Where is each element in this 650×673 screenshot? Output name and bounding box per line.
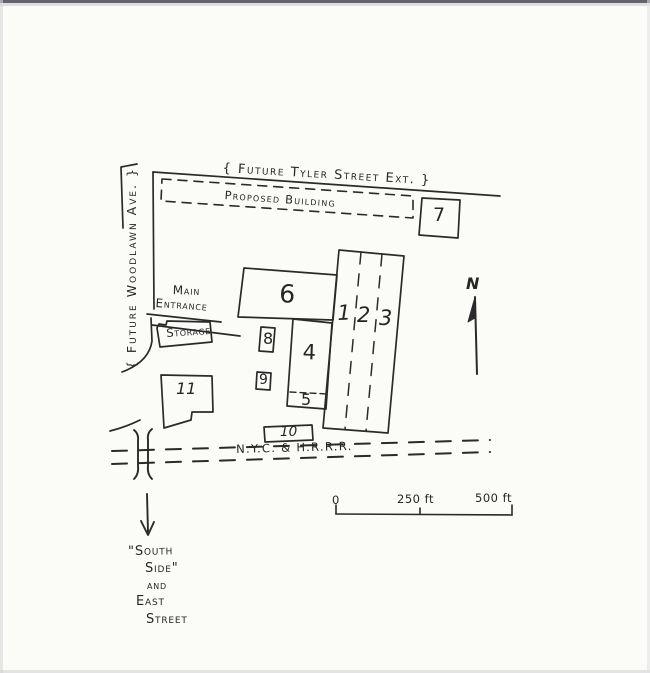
- south-label-line5: Street: [146, 613, 188, 626]
- factory-bay-divider-2: [366, 254, 382, 431]
- site-plan-page: { Future Tyler Street Ext. } { Future Wo…: [0, 0, 650, 673]
- building-11-number: 11: [176, 381, 196, 397]
- scan-edge-top-shadow: [0, 3, 650, 6]
- factory-bay-divider-1: [345, 252, 361, 429]
- building-7-number: 7: [433, 206, 445, 225]
- building-1-number: 1: [337, 303, 351, 324]
- crossing-mark-right: [148, 429, 152, 479]
- scale-bar-line: [336, 514, 512, 515]
- north-arrow-head: [468, 297, 475, 322]
- building-10-number: 10: [280, 426, 297, 440]
- building-6-number: 6: [279, 281, 296, 307]
- site-plan-drawing: [0, 0, 650, 673]
- scale-label-end: 500 ft: [475, 493, 512, 505]
- south-label-line4: East: [136, 595, 165, 608]
- building-2-number: 2: [357, 305, 370, 326]
- main-entrance-label-line2: Entrance: [155, 297, 208, 313]
- south-label-line1: "South: [128, 544, 173, 558]
- south-arrow-shaft: [147, 494, 148, 532]
- building-4-number: 4: [302, 342, 316, 363]
- main-entrance-label-line1: Main: [173, 284, 201, 297]
- storage-label: Storage: [166, 325, 211, 340]
- scan-edge-left: [0, 0, 3, 673]
- factory-building-outline: [323, 250, 404, 433]
- scale-label-middle: 250 ft: [397, 494, 434, 506]
- south-label-line3: and: [147, 580, 167, 592]
- building-9-number: 9: [259, 373, 268, 387]
- woodlawn-ave-label: { Future Woodlawn Ave. }: [126, 167, 139, 369]
- north-label: N: [466, 276, 479, 292]
- railroad-label: N.Y.C. & H.R.R.R.: [236, 441, 353, 456]
- building-3-number: 3: [379, 308, 392, 329]
- road-curve-fragment: [110, 420, 140, 431]
- scale-label-start: 0: [332, 495, 339, 507]
- crossing-mark-left: [134, 430, 138, 479]
- building-5-number: 5: [301, 392, 311, 408]
- building-8-number: 8: [263, 331, 273, 347]
- south-label-line2: Side": [145, 562, 179, 575]
- woodlawn-right-edge-upper: [153, 172, 154, 309]
